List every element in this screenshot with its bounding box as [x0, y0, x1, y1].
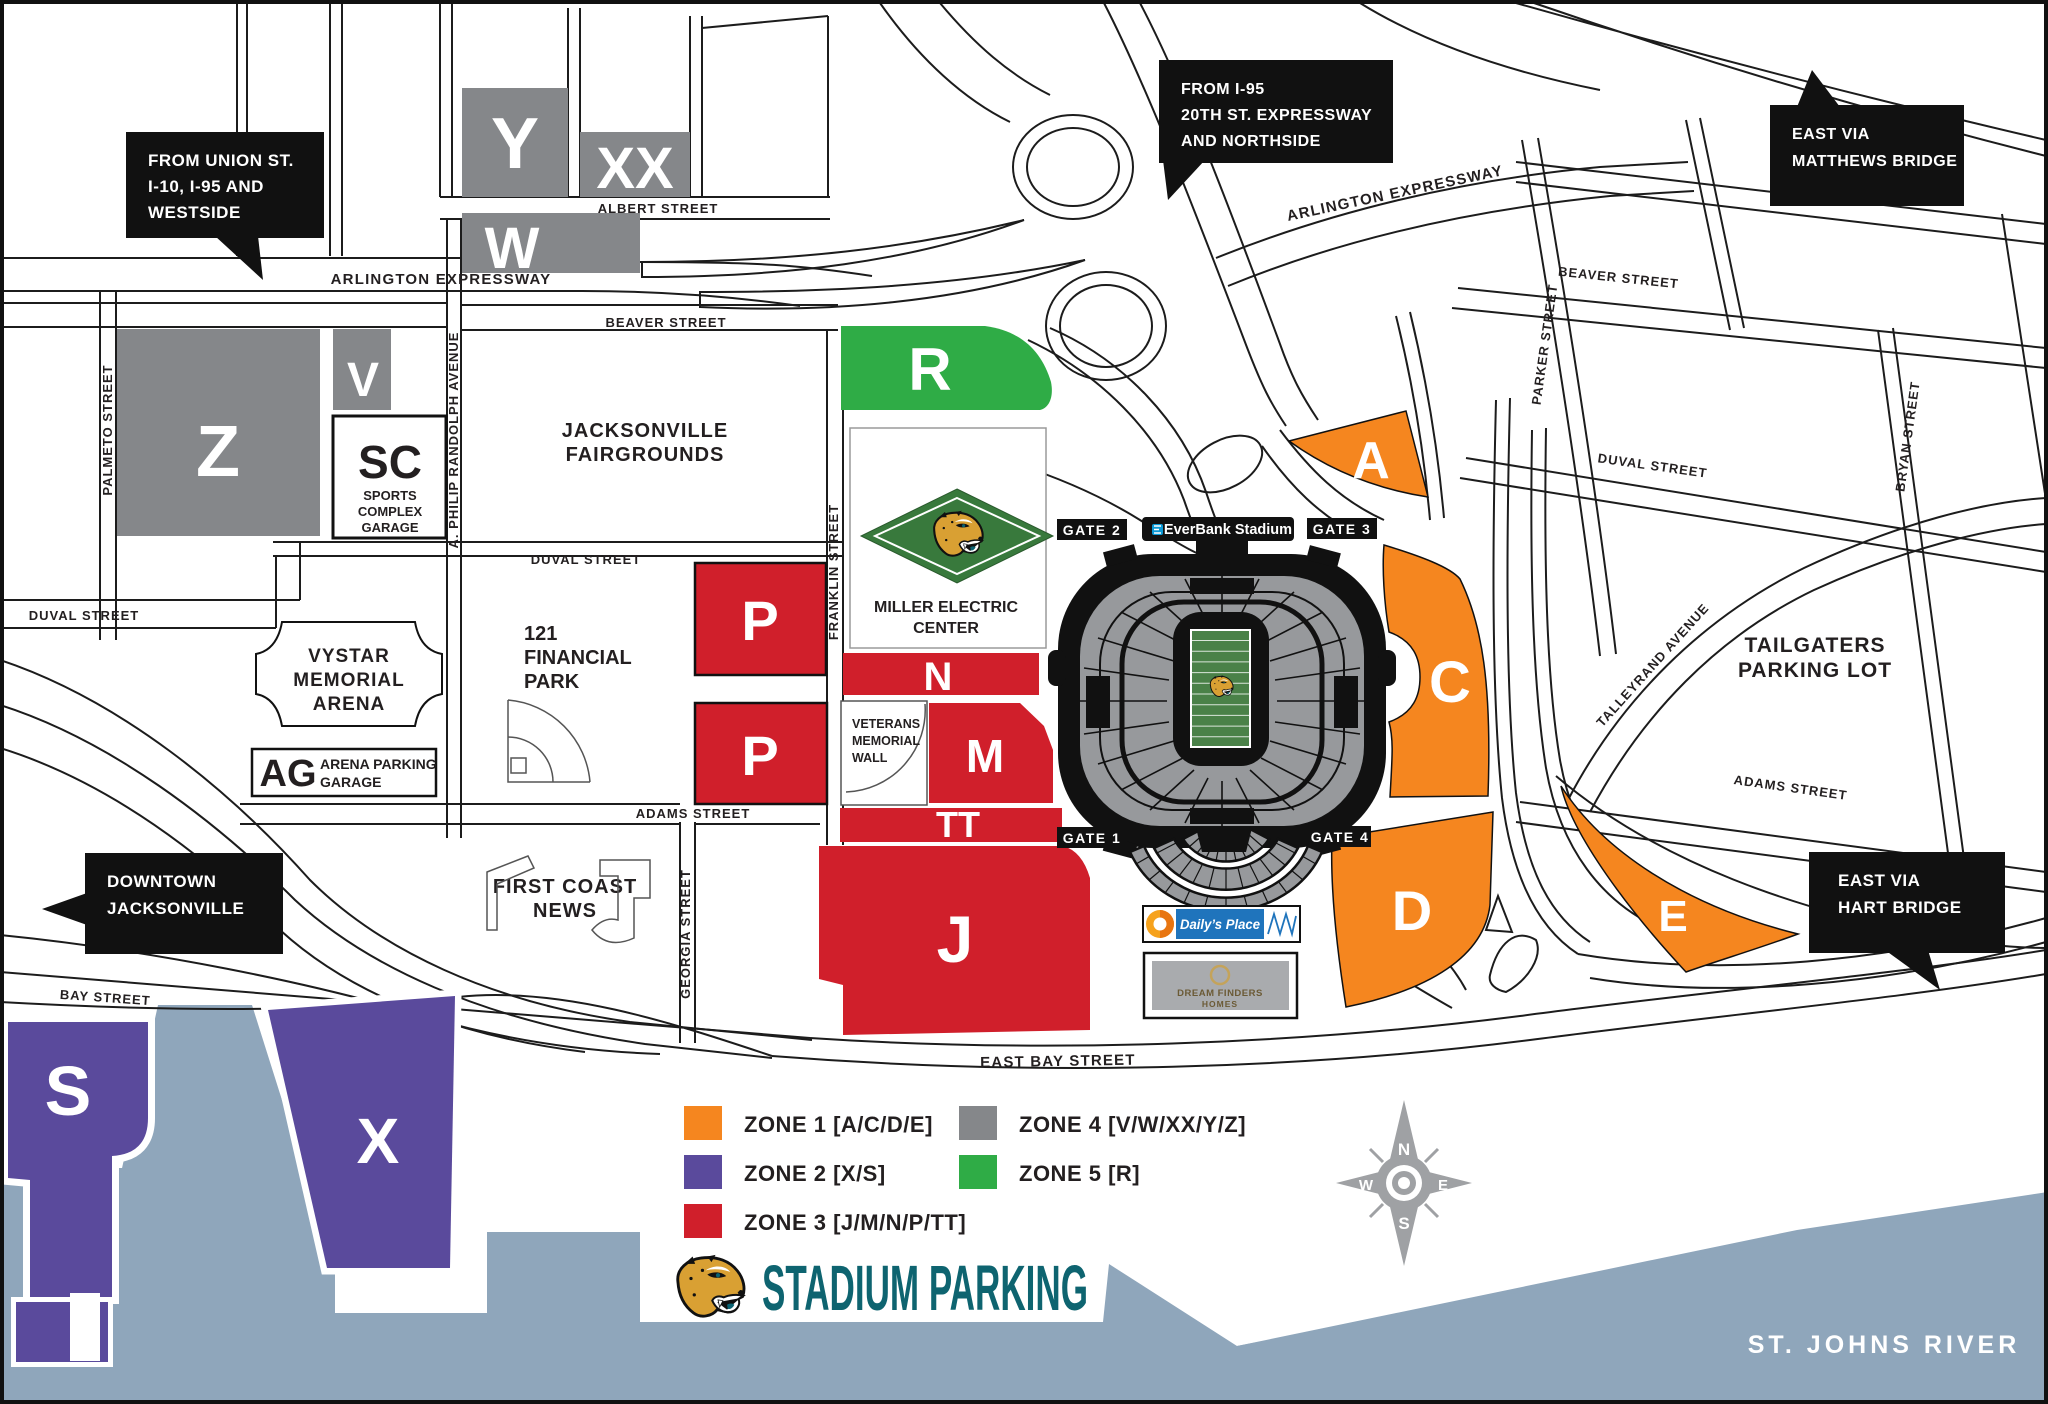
svg-text:P: P — [741, 589, 778, 652]
svg-text:WESTSIDE: WESTSIDE — [148, 203, 241, 222]
svg-text:GATE 2: GATE 2 — [1063, 522, 1122, 538]
svg-text:20TH ST. EXPRESSWAY: 20TH ST. EXPRESSWAY — [1181, 107, 1372, 124]
svg-text:I-10, I-95 AND: I-10, I-95 AND — [148, 177, 264, 196]
svg-text:CENTER: CENTER — [913, 620, 979, 637]
svg-text:R: R — [908, 336, 951, 403]
svg-text:ARENA: ARENA — [313, 694, 386, 715]
svg-text:N: N — [1398, 1140, 1410, 1159]
svg-text:GATE 4: GATE 4 — [1311, 829, 1370, 845]
svg-text:ST. JOHNS RIVER: ST. JOHNS RIVER — [1748, 1331, 2021, 1359]
svg-text:GARAGE: GARAGE — [320, 774, 381, 790]
svg-text:MILLER ELECTRIC: MILLER ELECTRIC — [874, 599, 1018, 616]
svg-text:Y: Y — [491, 104, 539, 184]
svg-text:ZONE 2 [X/S]: ZONE 2 [X/S] — [744, 1161, 886, 1186]
svg-text:FROM I-95: FROM I-95 — [1181, 81, 1265, 98]
svg-text:GEORGIA STREET: GEORGIA STREET — [678, 869, 693, 999]
svg-text:ZONE 3 [J/M/N/P/TT]: ZONE 3 [J/M/N/P/TT] — [744, 1210, 966, 1235]
svg-text:PALMETO STREET: PALMETO STREET — [100, 364, 115, 495]
svg-text:X: X — [357, 1105, 400, 1177]
svg-text:NEWS: NEWS — [533, 900, 597, 922]
svg-text:E: E — [1438, 1177, 1448, 1194]
svg-text:FRANKLIN STREET: FRANKLIN STREET — [826, 504, 841, 640]
svg-text:EverBank Stadium: EverBank Stadium — [1164, 522, 1292, 538]
svg-text:STADIUM PARKING: STADIUM PARKING — [762, 1252, 1088, 1324]
svg-text:EAST VIA: EAST VIA — [1838, 871, 1920, 890]
svg-text:C: C — [1429, 650, 1471, 715]
svg-text:MEMORIAL: MEMORIAL — [293, 670, 404, 691]
svg-text:BEAVER STREET: BEAVER STREET — [605, 315, 726, 330]
svg-text:M: M — [966, 730, 1004, 782]
svg-text:V: V — [347, 354, 379, 407]
svg-text:Daily’s Place: Daily’s Place — [1180, 917, 1260, 932]
svg-text:VYSTAR: VYSTAR — [308, 646, 390, 667]
svg-text:S: S — [1398, 1214, 1409, 1233]
svg-text:A. PHILIP RANDOLPH AVENUE: A. PHILIP RANDOLPH AVENUE — [446, 332, 461, 549]
svg-text:WALL: WALL — [852, 751, 888, 765]
svg-text:SPORTS: SPORTS — [363, 488, 417, 503]
svg-text:XX: XX — [596, 136, 674, 201]
svg-text:P: P — [741, 724, 778, 787]
svg-text:ZONE 1 [A/C/D/E]: ZONE 1 [A/C/D/E] — [744, 1112, 933, 1137]
svg-text:ADAMS STREET: ADAMS STREET — [636, 806, 751, 821]
svg-text:ZONE 4 [V/W/XX/Y/Z]: ZONE 4 [V/W/XX/Y/Z] — [1019, 1112, 1246, 1137]
svg-text:ARENA PARKING: ARENA PARKING — [320, 756, 437, 772]
svg-text:AND NORTHSIDE: AND NORTHSIDE — [1181, 133, 1321, 150]
svg-text:MATTHEWS BRIDGE: MATTHEWS BRIDGE — [1792, 153, 1957, 170]
svg-text:DUVAL STREET: DUVAL STREET — [29, 608, 139, 623]
svg-text:FIRST COAST: FIRST COAST — [493, 876, 637, 898]
svg-text:PARKING LOT: PARKING LOT — [1738, 659, 1892, 682]
svg-text:EAST VIA: EAST VIA — [1792, 126, 1870, 143]
svg-text:VETERANS: VETERANS — [852, 717, 920, 731]
svg-text:MEMORIAL: MEMORIAL — [852, 734, 920, 748]
svg-text:S: S — [45, 1052, 92, 1130]
svg-text:DOWNTOWN: DOWNTOWN — [107, 872, 216, 891]
svg-text:121: 121 — [524, 623, 557, 645]
svg-text:HART BRIDGE: HART BRIDGE — [1838, 898, 1962, 917]
svg-text:DREAM FINDERS: DREAM FINDERS — [1177, 988, 1263, 999]
svg-text:Z: Z — [196, 412, 240, 492]
svg-text:PARK: PARK — [524, 671, 580, 693]
svg-text:GARAGE: GARAGE — [361, 520, 418, 535]
svg-text:J: J — [937, 902, 974, 976]
svg-text:GATE 3: GATE 3 — [1313, 521, 1372, 537]
svg-text:ZONE 5 [R]: ZONE 5 [R] — [1019, 1161, 1140, 1186]
svg-text:D: D — [1392, 879, 1432, 942]
svg-text:E: E — [1658, 892, 1687, 941]
svg-text:COMPLEX: COMPLEX — [358, 504, 423, 519]
svg-text:TT: TT — [936, 804, 980, 845]
svg-text:N: N — [924, 655, 953, 699]
svg-text:TAILGATERS: TAILGATERS — [1744, 634, 1885, 657]
svg-text:AG: AG — [260, 753, 317, 795]
svg-text:JACKSONVILLE: JACKSONVILLE — [562, 420, 728, 442]
svg-text:HOMES: HOMES — [1202, 999, 1238, 1009]
svg-text:SC: SC — [358, 436, 422, 488]
svg-text:W: W — [1359, 1177, 1374, 1194]
svg-text:GATE 1: GATE 1 — [1063, 830, 1122, 846]
svg-text:A: A — [1352, 432, 1390, 490]
svg-text:FAIRGROUNDS: FAIRGROUNDS — [566, 444, 725, 466]
svg-text:W: W — [485, 216, 540, 281]
svg-text:FROM UNION ST.: FROM UNION ST. — [148, 151, 294, 170]
svg-text:JACKSONVILLE: JACKSONVILLE — [107, 899, 244, 918]
svg-text:FINANCIAL: FINANCIAL — [524, 647, 632, 669]
svg-text:EAST BAY STREET: EAST BAY STREET — [980, 1052, 1136, 1072]
svg-text:DUVAL STREET: DUVAL STREET — [531, 552, 641, 567]
